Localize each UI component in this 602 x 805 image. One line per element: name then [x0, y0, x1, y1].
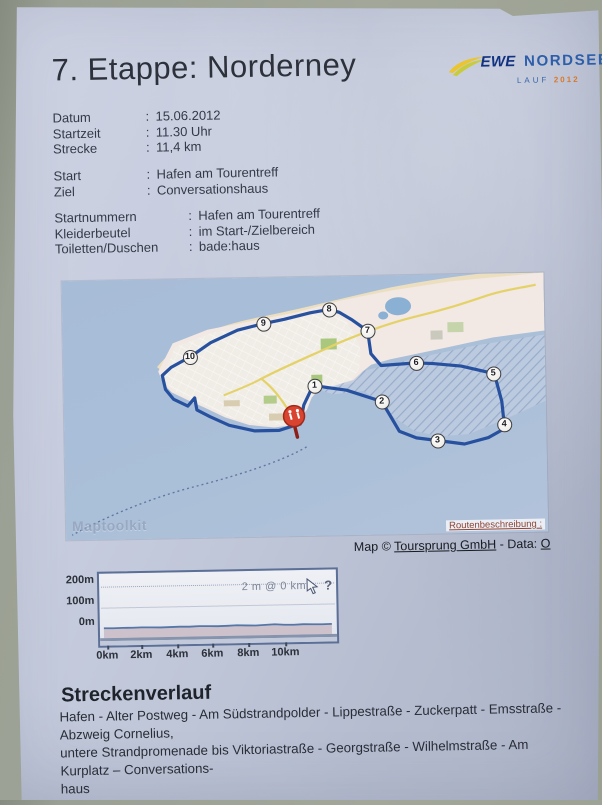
x-tick-mark — [285, 642, 287, 646]
y-tick-label: 200m — [62, 574, 94, 587]
dune-gray-patch — [430, 330, 442, 339]
logo-brand-text: EWE — [480, 53, 515, 71]
info-value: im Start-/Zielbereich — [198, 221, 315, 238]
route-waypoint-5: 5 — [486, 366, 501, 381]
info-value: Hafen am Tourentreff — [156, 164, 278, 181]
page-content: 7. Etappe: Norderney EWE NORDSEE LAUF 20… — [0, 0, 602, 805]
ewe-nordsee-lauf-logo: EWE NORDSEE LAUF 2012 — [446, 50, 577, 86]
info-colon: : — [146, 140, 156, 156]
y-tick-label: 100m — [62, 595, 94, 608]
info-group-start-ziel: Start:Hafen am TourentreffZiel:Conversat… — [53, 164, 278, 199]
x-tick-label: 8km — [237, 647, 259, 659]
logo-name-text: NORDSEE — [524, 51, 602, 70]
y-tick-label: 0m — [63, 616, 95, 629]
info-colon: : — [147, 182, 157, 198]
attribution-sep: - Data: — [496, 537, 541, 552]
data-source-link: O — [541, 536, 551, 550]
toursprung-link: Toursprung GmbH — [394, 537, 496, 553]
streckenverlauf-description: Hafen - Alter Postweg - Am Südstrandpold… — [59, 699, 581, 799]
route-waypoint-2: 2 — [374, 394, 389, 409]
info-colon: : — [146, 167, 156, 183]
elevation-profile-chart: 2 m @ 0 km ? 200m100m0m 0km2km4km6km8km1… — [62, 559, 364, 669]
info-colon: : — [188, 208, 198, 224]
info-label: Strecke — [53, 140, 146, 157]
x-tick-label: 4km — [166, 648, 188, 660]
x-tick-mark — [141, 645, 143, 649]
x-tick-label: 10km — [271, 646, 299, 659]
info-value: Hafen am Tourentreff — [198, 206, 320, 223]
info-colon: : — [145, 109, 155, 125]
x-tick-label: 6km — [201, 647, 223, 659]
info-value: bade:haus — [199, 238, 260, 254]
info-colon: : — [146, 124, 156, 140]
x-tick-label: 2km — [130, 649, 152, 661]
info-group-date-time-distance: Datum:15.06.2012Startzeit:11.30 UhrStrec… — [52, 107, 221, 157]
info-value: Conversationshaus — [157, 180, 269, 197]
info-value: 11,4 km — [156, 139, 202, 155]
page-title: 7. Etappe: Norderney — [51, 47, 356, 89]
info-colon: : — [188, 223, 198, 239]
info-row: Ziel:Conversationshaus — [54, 180, 279, 200]
x-axis-labels: 0km2km4km6km8km10km — [62, 559, 362, 564]
cursor-question-icon: ? — [306, 577, 332, 595]
route-waypoint-1: 1 — [307, 378, 322, 393]
y-axis-labels: 200m100m0m — [62, 559, 362, 564]
logo-year-text: 2012 — [554, 75, 580, 84]
route-waypoint-7: 7 — [360, 323, 375, 338]
park-patch — [264, 395, 277, 403]
routenbeschreibung-link: Routenbeschreibung : — [446, 519, 545, 532]
chart-plot-area: 2 m @ 0 km ? — [97, 567, 339, 647]
info-label: Datum — [52, 109, 145, 126]
info-label: Start — [53, 167, 146, 184]
x-tick-mark — [248, 643, 250, 647]
route-waypoint-8: 8 — [321, 302, 336, 317]
info-group-logistics: Startnummern:Hafen am TourentreffKleider… — [54, 206, 320, 257]
start-finish-marker — [283, 405, 305, 437]
route-waypoint-6: 6 — [408, 355, 423, 370]
map-artwork — [62, 273, 549, 541]
attribution-prefix: Map © — [354, 539, 394, 554]
chart-tooltip-text: 2 m @ 0 km — [242, 580, 307, 593]
map-attribution: Map © Toursprung GmbH - Data: O — [243, 536, 550, 556]
route-waypoint-4: 4 — [497, 417, 512, 432]
x-tick-label: 0km — [96, 649, 118, 661]
x-tick-mark — [212, 644, 214, 648]
info-colon: : — [189, 239, 199, 255]
logo-lauf-text: LAUF — [517, 75, 550, 85]
info-label: Ziel — [54, 182, 147, 199]
route-map: 12345678910 Maptoolkit Routenbeschreibun… — [62, 273, 549, 541]
info-row: Strecke:11,4 km — [53, 138, 221, 157]
maptoolkit-watermark: Maptoolkit — [72, 517, 147, 534]
dune-green-patch — [447, 322, 463, 332]
x-tick-mark — [177, 644, 179, 648]
route-waypoint-3: 3 — [430, 433, 445, 448]
info-label: Startzeit — [53, 124, 146, 141]
streckenverlauf-heading: Streckenverlauf — [61, 682, 211, 708]
info-label: Toiletten/Duschen — [55, 239, 189, 257]
route-waypoint-9: 9 — [256, 316, 271, 331]
building-patch — [224, 400, 240, 406]
info-value: 11.30 Uhr — [156, 123, 212, 139]
x-tick-mark — [107, 646, 109, 650]
route-waypoint-10: 10 — [182, 349, 197, 364]
info-value: 15.06.2012 — [155, 107, 220, 123]
